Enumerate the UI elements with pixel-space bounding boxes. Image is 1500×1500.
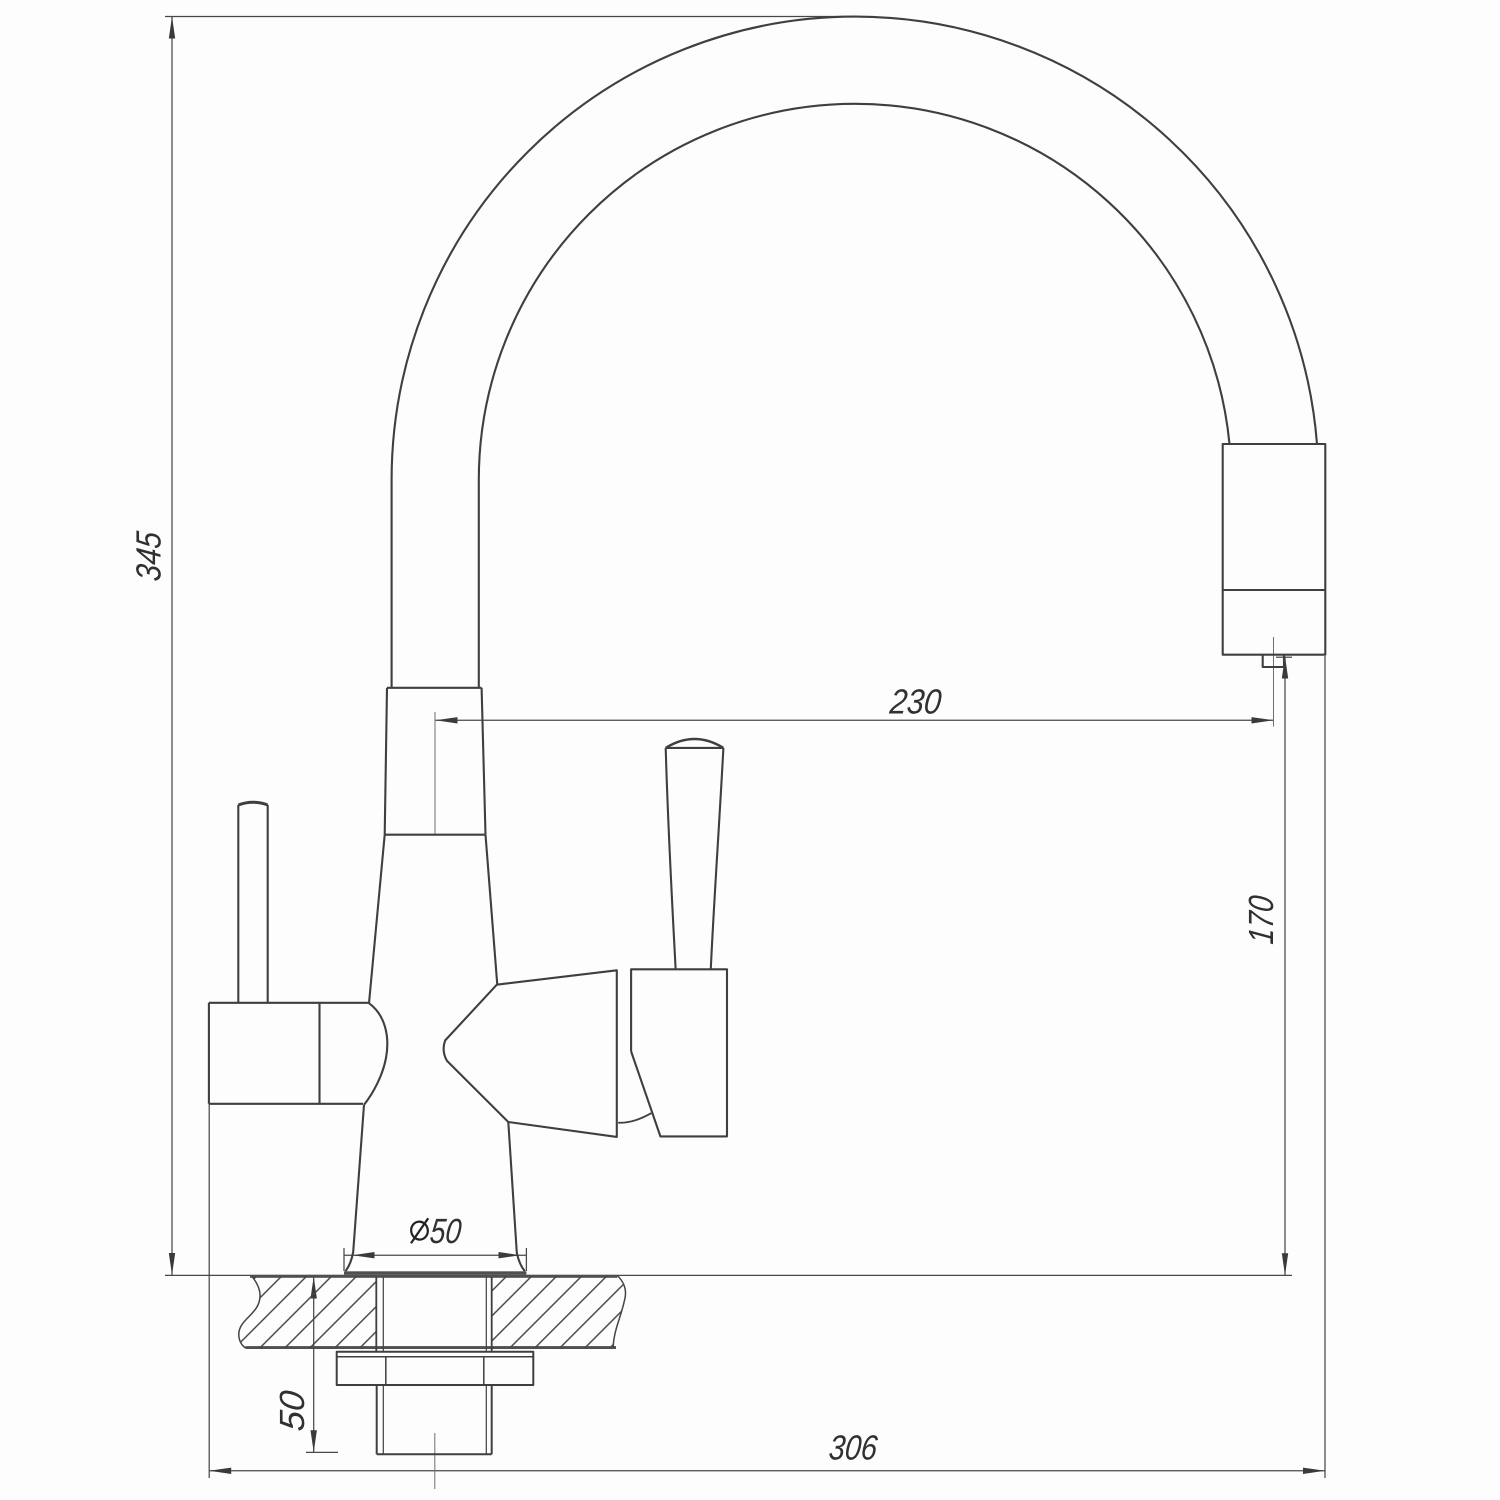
- svg-text:230: 230: [887, 683, 943, 722]
- svg-text:50: 50: [273, 1388, 312, 1433]
- svg-text:345: 345: [130, 529, 169, 582]
- svg-text:306: 306: [827, 1429, 879, 1468]
- svg-text:50: 50: [428, 1212, 463, 1251]
- svg-text:170: 170: [1242, 893, 1281, 945]
